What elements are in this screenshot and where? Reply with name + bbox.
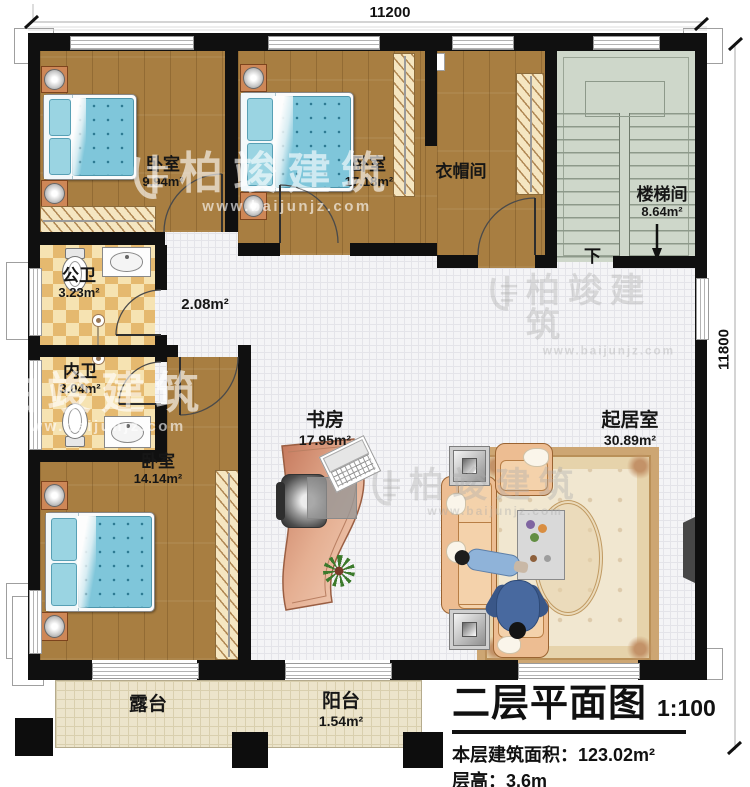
door-leaves (116, 174, 535, 415)
room-label-terrace: 露台 (129, 694, 167, 716)
sill-lines (28, 27, 707, 30)
annotations-layer (0, 0, 750, 787)
room-area: 17.18m² (345, 175, 393, 190)
room-name: 卧室 (134, 452, 182, 472)
stairs-down-label: 下 (584, 242, 601, 267)
room-area: 1.54m² (319, 713, 363, 729)
door-swing (116, 290, 161, 335)
dimension-tick (695, 18, 708, 30)
plan-scale: 1:100 (657, 695, 716, 721)
room-area: 8.64m² (637, 205, 688, 220)
room-label-bedroom3: 卧室 14.14m² (134, 452, 182, 486)
column (403, 732, 443, 768)
room-name: 起居室 (601, 410, 658, 432)
room-label-stairwell: 楼梯间 8.64m² (637, 185, 688, 219)
room-name: 露台 (129, 694, 167, 716)
column (15, 718, 53, 756)
room-area: 9.94m² (142, 175, 183, 190)
door-swing (478, 198, 535, 255)
door-swing (280, 185, 338, 243)
room-area: 3.04m² (59, 382, 100, 397)
room-name: 书房 (299, 410, 351, 432)
room-label-hallway: 2.08m² (181, 296, 229, 313)
floor-area-value: 123.02m² (578, 745, 655, 765)
room-name: 卧室 (345, 155, 393, 175)
plan-title-row: 二层平面图1:100 (452, 672, 716, 727)
column (232, 732, 268, 768)
title-underline (452, 730, 686, 734)
room-label-public-bath: 公卫 3.23m² (58, 266, 99, 300)
room-area: 2.08m² (181, 296, 229, 313)
room-name: 衣帽间 (436, 162, 487, 182)
dimension-ticks (25, 16, 742, 754)
down-arrow-head (652, 248, 662, 261)
floor-plan-canvas: 11200 11800 卧室 9.94m² 卧室 17.18m² 衣帽间 楼梯间… (0, 0, 750, 787)
room-label-cloakroom: 衣帽间 (436, 162, 487, 182)
room-area: 17.95m² (299, 432, 351, 448)
door-swing-arcs (116, 174, 535, 415)
room-label-bedroom2: 卧室 17.18m² (345, 155, 393, 189)
room-name: 公卫 (58, 266, 99, 286)
room-area: 3.23m² (58, 286, 99, 301)
room-area: 30.89m² (601, 432, 658, 448)
floor-area-label: 本层建筑面积： (452, 745, 578, 765)
room-label-study: 书房 17.95m² (299, 410, 351, 448)
door-swing (180, 357, 238, 415)
room-area: 14.14m² (134, 472, 182, 487)
room-name: 卧室 (142, 155, 183, 175)
room-label-living-room: 起居室 30.89m² (601, 410, 658, 448)
plan-title: 二层平面图 (452, 683, 647, 725)
floor-height-stat: 层高：3.6m (452, 768, 716, 787)
floor-height-label: 层高： (452, 771, 506, 787)
room-name: 阳台 (319, 691, 363, 713)
floor-area-stat: 本层建筑面积：123.02m² (452, 742, 716, 768)
room-name: 楼梯间 (637, 185, 688, 205)
room-label-balcony: 阳台 1.54m² (319, 691, 363, 729)
room-name: 内卫 (59, 362, 100, 382)
door-swing (119, 362, 161, 404)
room-label-bedroom1: 卧室 9.94m² (142, 155, 183, 189)
room-label-private-bath: 内卫 3.04m² (59, 362, 100, 396)
title-block: 二层平面图1:100 本层建筑面积：123.02m² 层高：3.6m (452, 672, 716, 787)
floor-height-value: 3.6m (506, 771, 547, 787)
